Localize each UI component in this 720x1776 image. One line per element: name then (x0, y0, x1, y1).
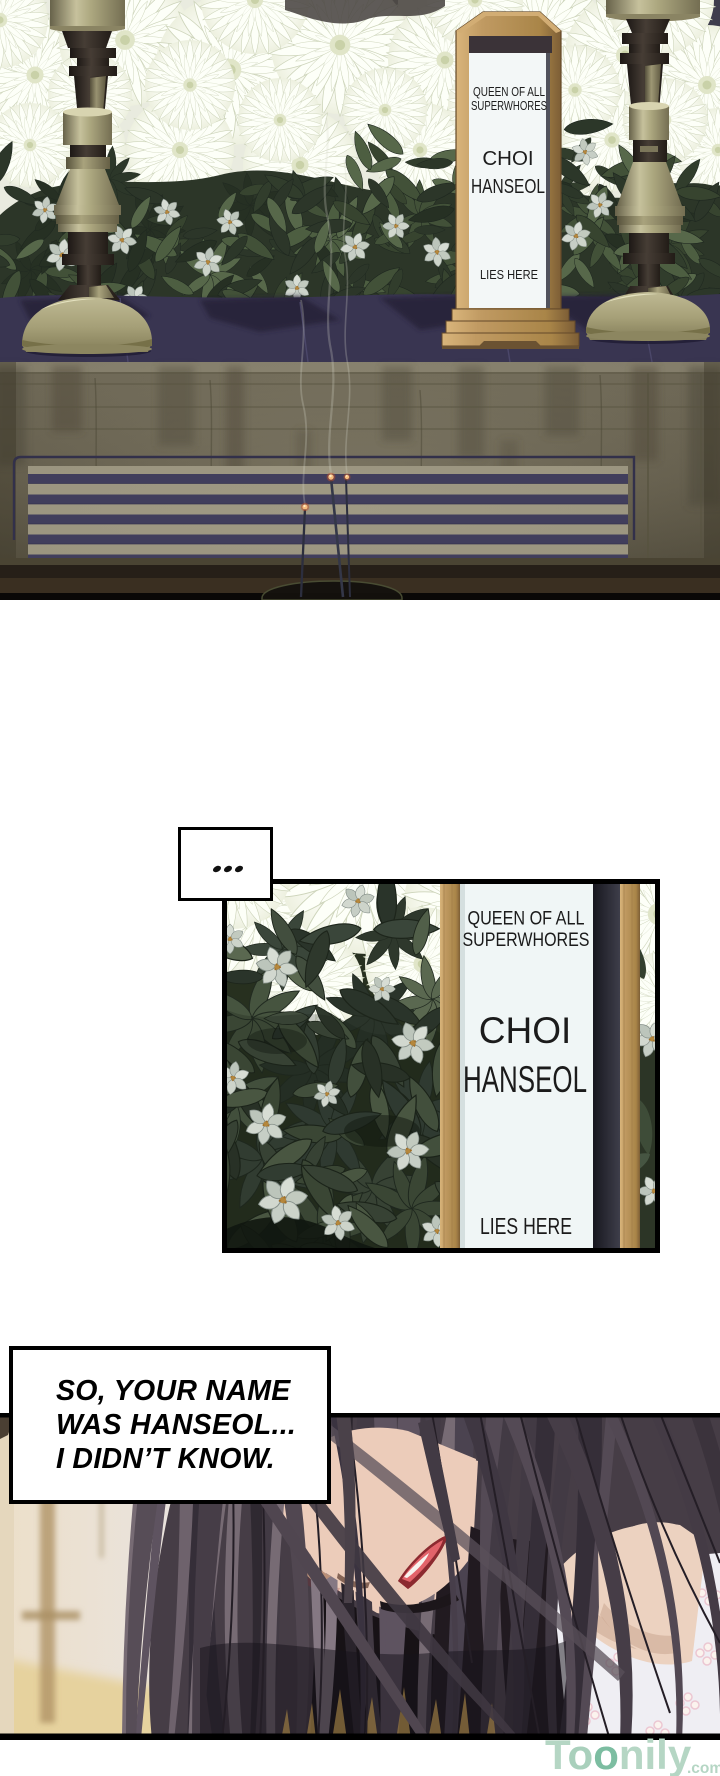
svg-text:QUEEN OF ALL: QUEEN OF ALL (468, 909, 585, 930)
svg-text:CHOI: CHOI (482, 147, 533, 170)
svg-text:QUEEN OF ALL: QUEEN OF ALL (473, 85, 545, 99)
svg-text:.com: .com (687, 1760, 720, 1776)
svg-text:LIES HERE: LIES HERE (480, 267, 538, 282)
svg-text:CHOI: CHOI (479, 1010, 572, 1051)
svg-text:Toonily: Toonily (545, 1731, 692, 1776)
svg-text:LIES HERE: LIES HERE (480, 1213, 572, 1239)
svg-text:SUPERWHORES: SUPERWHORES (471, 99, 547, 113)
svg-text:HANSEOL: HANSEOL (463, 1059, 587, 1100)
svg-text:SUPERWHORES: SUPERWHORES (463, 930, 590, 951)
svg-text:HANSEOL: HANSEOL (471, 175, 545, 198)
